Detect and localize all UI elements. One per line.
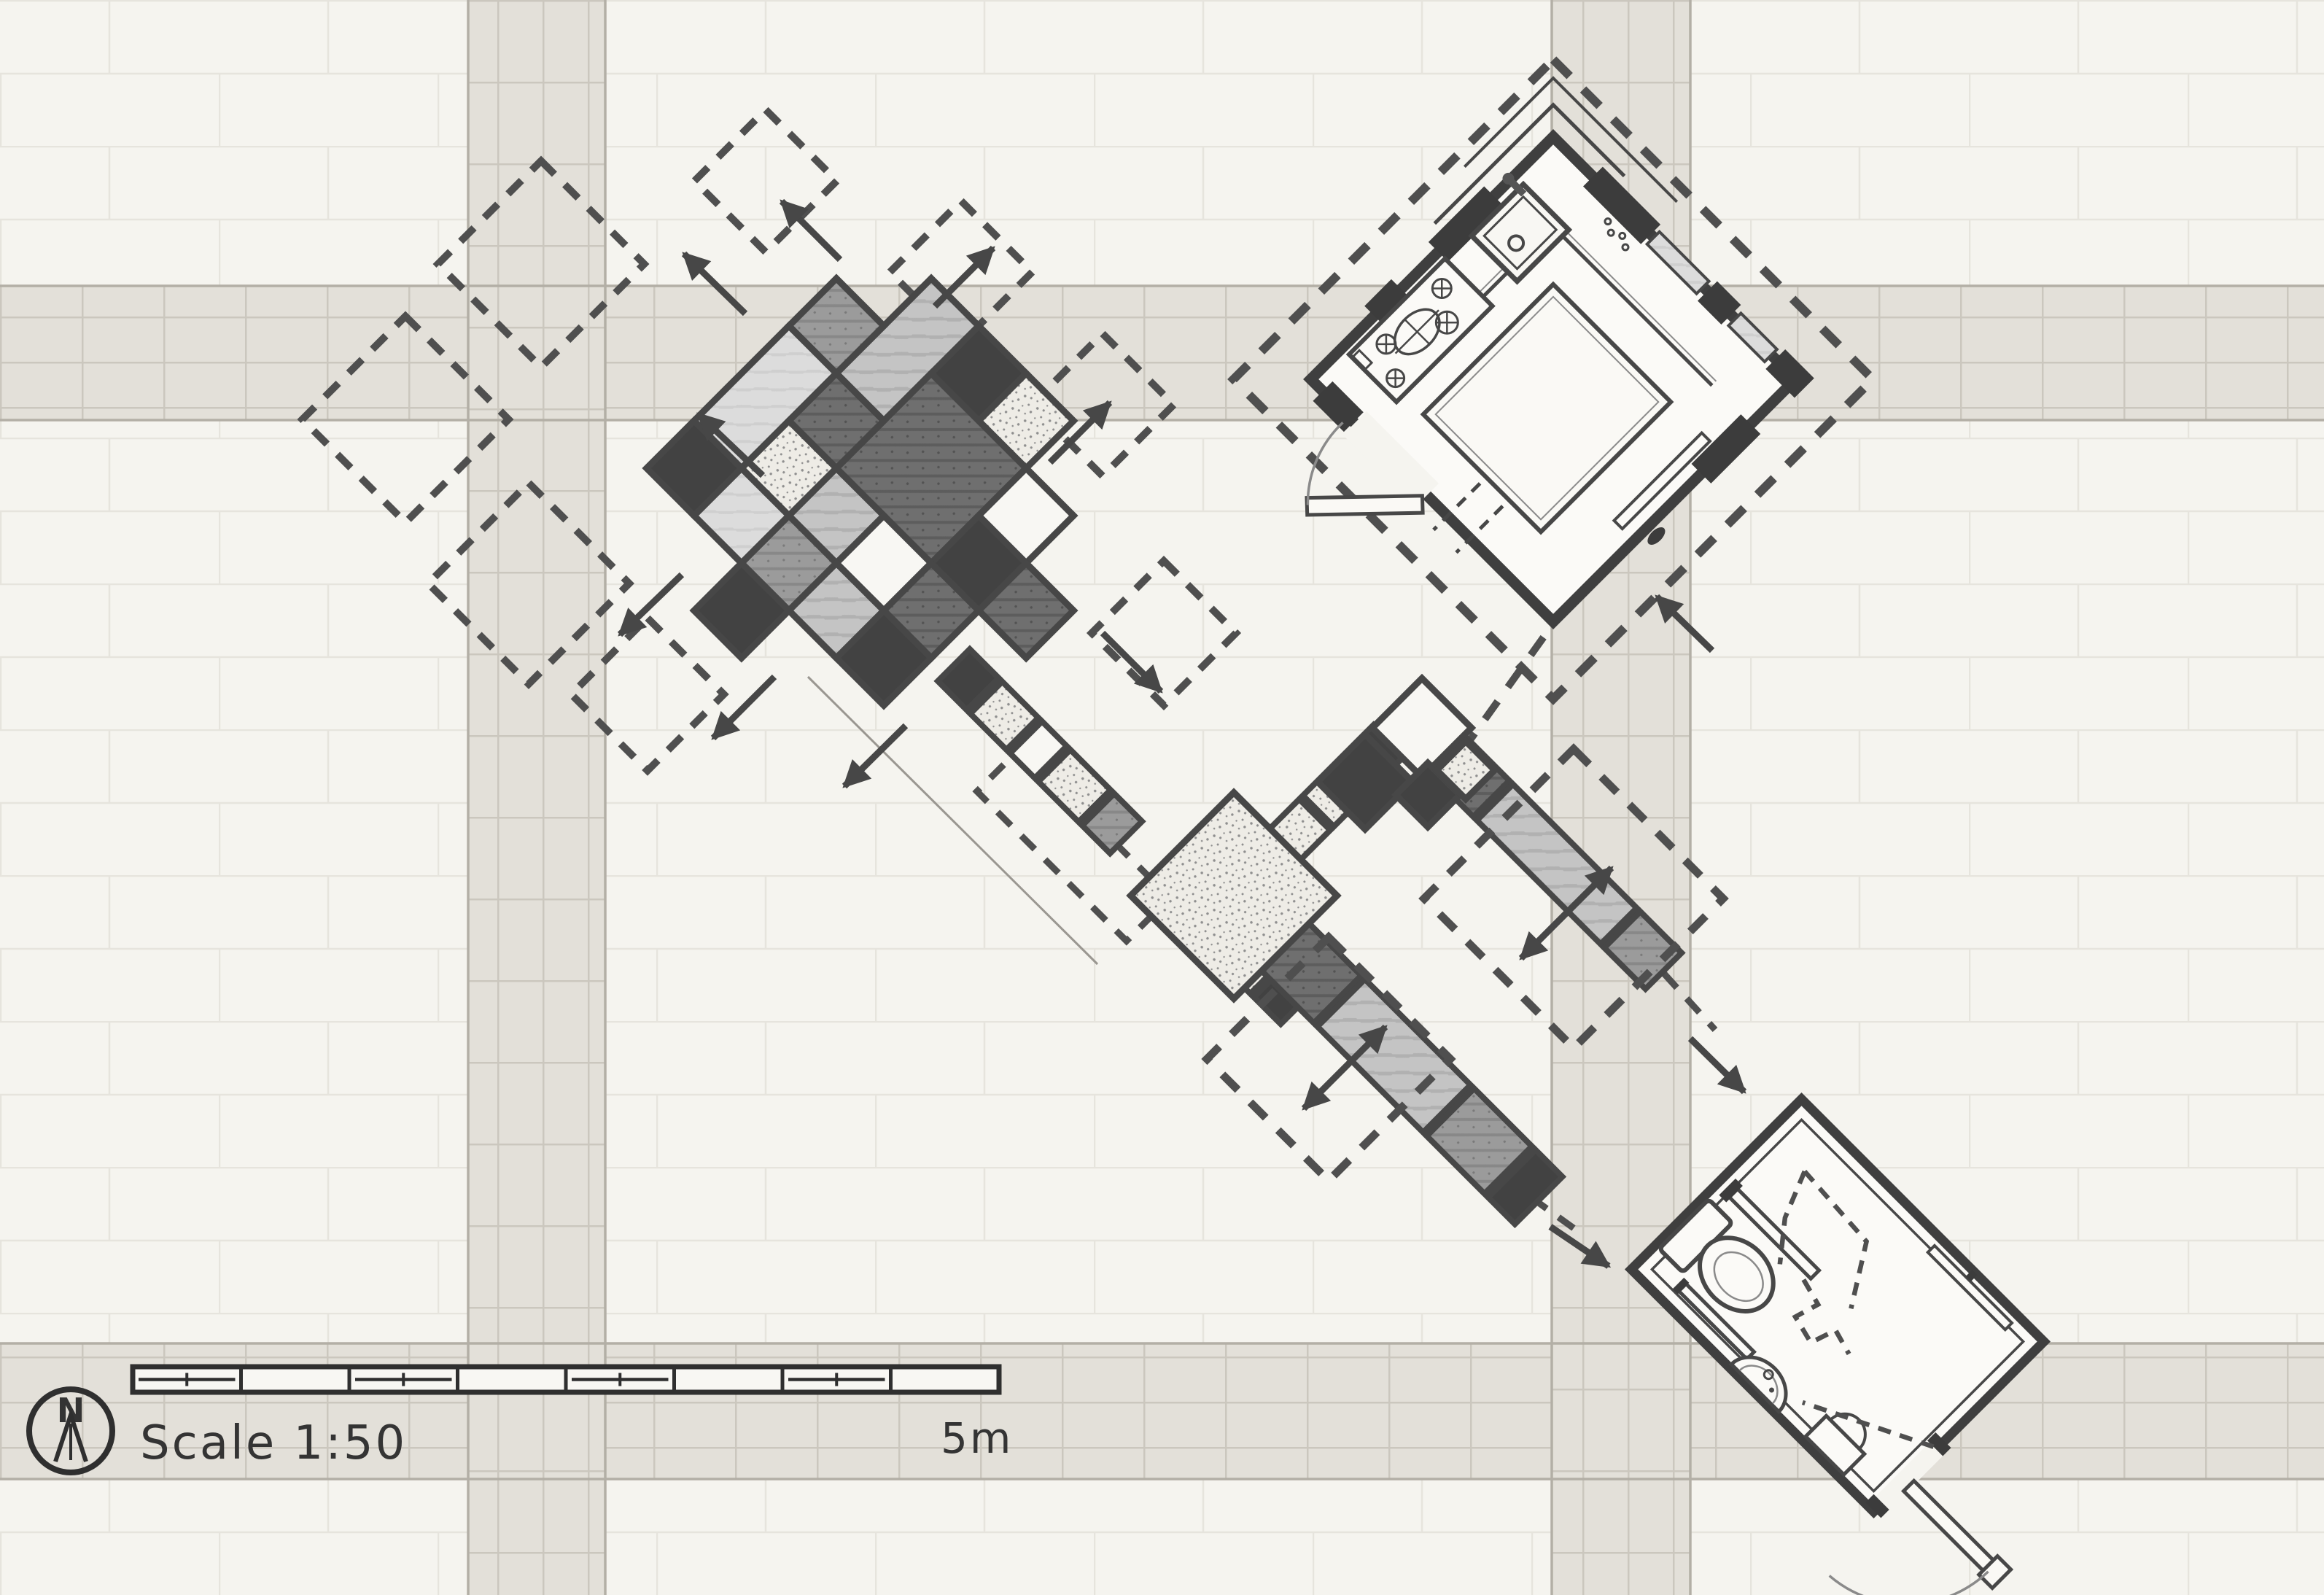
- site-plan-drawing: N Scale 1:50 5m: [0, 0, 2324, 1595]
- street-horizontal-north-pavers: [0, 286, 2324, 420]
- street-vertical-west-pavers: [468, 0, 605, 1595]
- scale-label: Scale 1:50: [140, 1416, 407, 1470]
- scale-end-label: 5m: [941, 1413, 1013, 1463]
- site-plan-page: N Scale 1:50 5m: [0, 0, 2324, 1595]
